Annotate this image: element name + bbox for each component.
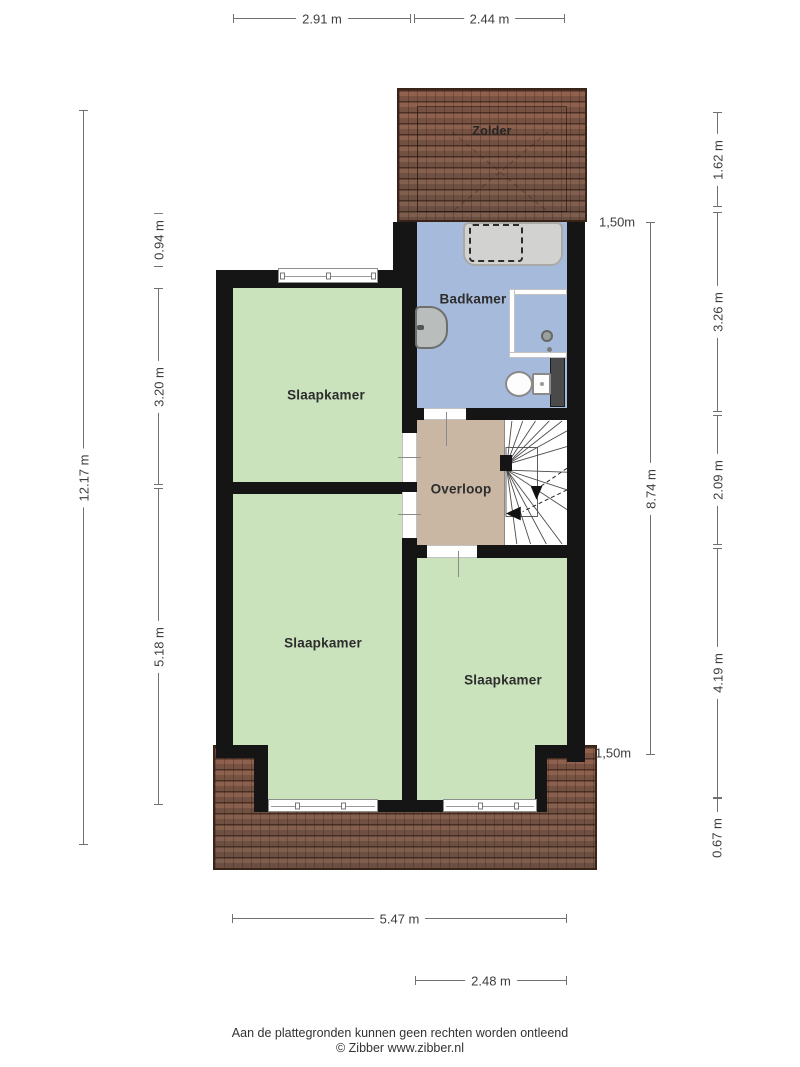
room-label-slaapkamer-bottomright: Slaapkamer (464, 673, 542, 688)
room-label-slaapkamer-topleft: Slaapkamer (287, 388, 365, 403)
wall-stub-left-h (216, 745, 268, 758)
shower-enclosure-bottom (509, 352, 567, 358)
dimension-line-total-height: 12.17 m (83, 110, 84, 845)
shower-enclosure-top (509, 289, 567, 295)
dimension-line-top-left: 2.91 m (233, 18, 411, 19)
shower-enclosure-left (509, 289, 515, 358)
dimension-line-top-right: 2.44 m (414, 18, 565, 19)
floorplan-canvas: Zolder Badkamer Slaapkamer Overloop Slaa… (0, 0, 800, 1067)
headroom-label-bottom: 1,50m (595, 746, 631, 761)
dimension-label-right-roof-edge: 0.67 m (710, 814, 725, 862)
headroom-label-top: 1,50m (599, 215, 635, 230)
door-leaf (398, 514, 421, 515)
footer: Aan de plattegronden kunnen geen rechten… (0, 1026, 800, 1056)
dimension-line-inner-right: 8.74 m (650, 222, 651, 755)
door-leaf (398, 457, 421, 458)
dimension-line-right-zolder: 1.62 m (717, 112, 718, 207)
room-slaapkamer-bottomleft-floor (233, 494, 402, 750)
room-label-slaapkamer-bottomleft: Slaapkamer (284, 636, 362, 651)
dimension-line-bottom-total: 5.47 m (232, 918, 567, 919)
dimension-line-left-middle: 3.20 m (158, 288, 159, 485)
wall-stair-newel (500, 455, 512, 471)
toilet-fixture (505, 371, 533, 397)
wall-exterior-right (567, 222, 585, 762)
shower-drain (541, 330, 553, 342)
footer-disclaimer: Aan de plattegronden kunnen geen rechten… (0, 1026, 800, 1041)
room-slaapkamer-topleft-floor (233, 288, 402, 483)
room-slaapkamer-bottomright-floor (417, 556, 567, 748)
dimension-line-right-overloop: 2.09 m (717, 415, 718, 545)
dimension-line-left-lower: 5.18 m (158, 488, 159, 805)
door-leaf (458, 551, 459, 577)
shower-drain-dot (547, 347, 552, 352)
toilet-cistern-dot (540, 382, 544, 386)
dimension-line-bottom-right: 2.48 m (415, 980, 567, 981)
wall-between-left-bedrooms (216, 482, 410, 494)
room-label-overloop: Overloop (431, 482, 492, 497)
duct-shaft (550, 357, 565, 407)
window (443, 799, 537, 812)
footer-copyright: © Zibber www.zibber.nl (0, 1041, 800, 1056)
dimension-line-right-roof-edge (717, 798, 718, 812)
door-opening-badkamer (424, 408, 466, 420)
stairs (504, 420, 567, 545)
room-label-badkamer: Badkamer (440, 292, 507, 307)
door-opening-bottomright (427, 545, 477, 558)
window (278, 268, 378, 283)
wall-bottom-center (378, 800, 443, 812)
washbasin-tap (417, 325, 424, 330)
roof-slope-marks (452, 132, 548, 212)
door-opening-overloop-bottom (402, 492, 417, 538)
wall-spine-lower (402, 538, 417, 812)
dimension-line-left-upper: 0.94 m (158, 213, 159, 267)
bathtub-dashed-outline (469, 224, 523, 262)
room-label-zolder: Zolder (472, 124, 511, 138)
dimension-line-right-badkamer: 3.26 m (717, 212, 718, 412)
dimension-line-right-slaapkamer: 4.19 m (717, 548, 718, 798)
window (268, 799, 378, 812)
door-leaf (446, 412, 447, 446)
wall-exterior-left (216, 270, 233, 758)
